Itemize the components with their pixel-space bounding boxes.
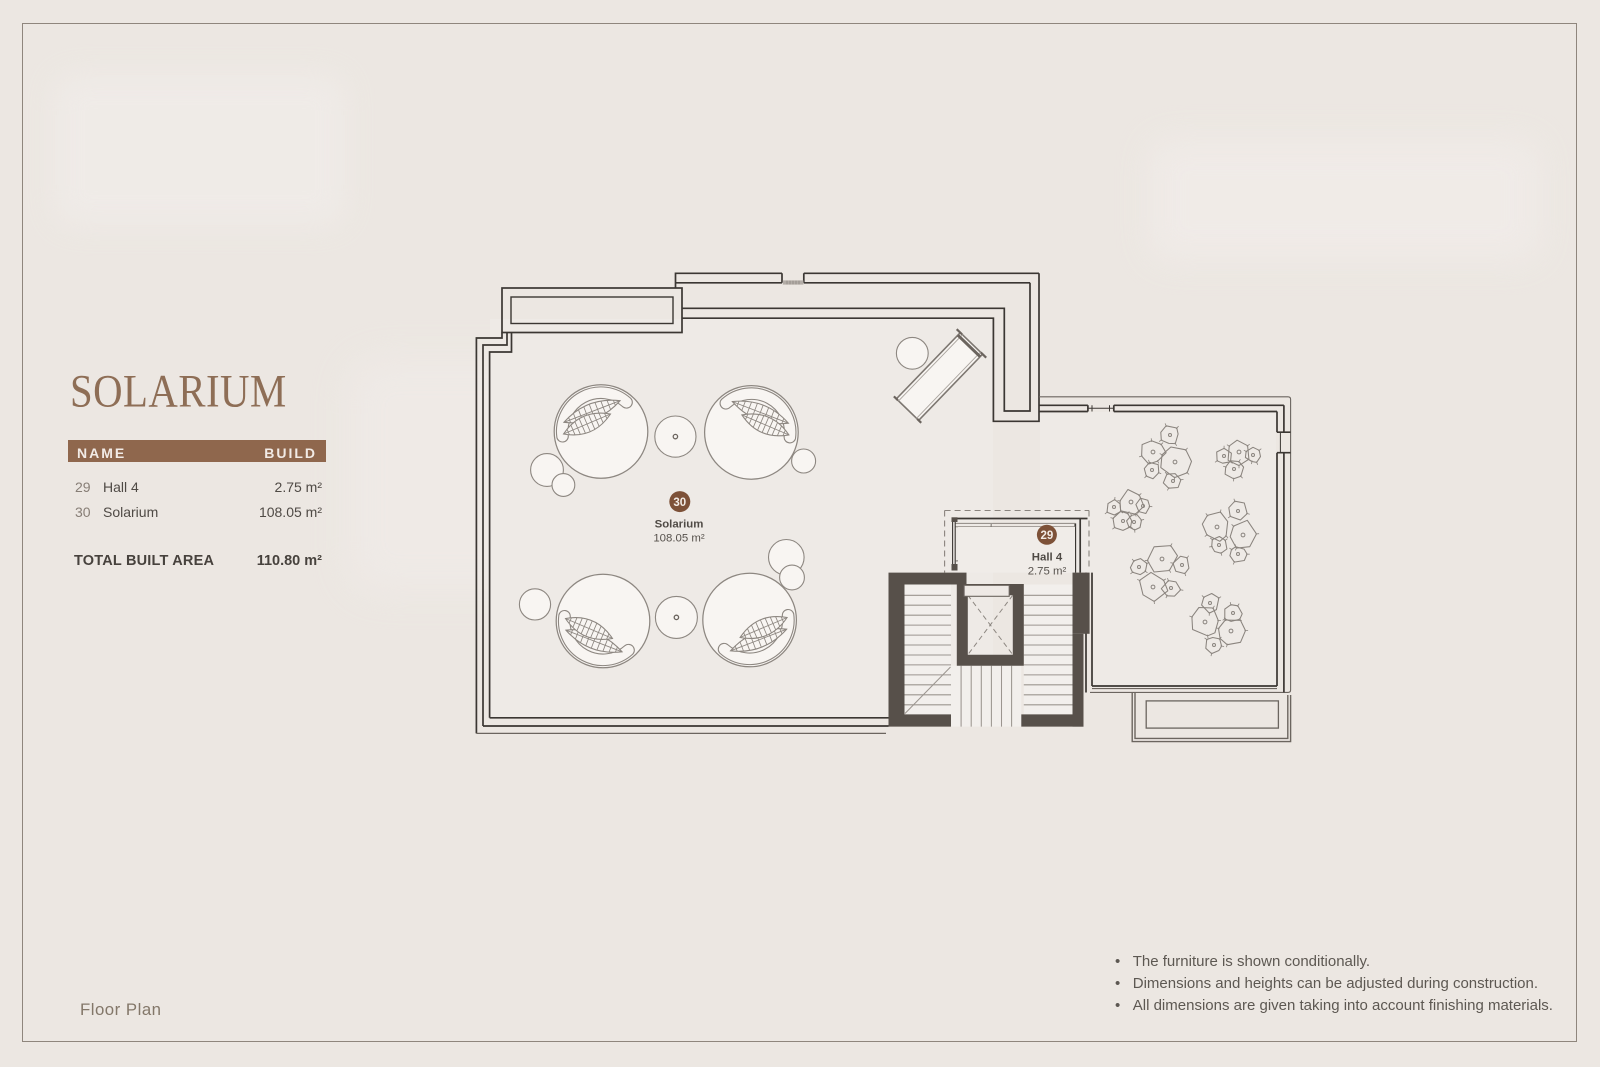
svg-text:108.05 m²: 108.05 m² — [653, 533, 704, 545]
svg-text:30: 30 — [673, 497, 686, 509]
svg-text:Hall 4: Hall 4 — [1032, 552, 1063, 564]
svg-text:29: 29 — [1041, 530, 1054, 542]
svg-text:2.75 m²: 2.75 m² — [1028, 566, 1067, 578]
svg-text:Solarium: Solarium — [655, 519, 704, 531]
